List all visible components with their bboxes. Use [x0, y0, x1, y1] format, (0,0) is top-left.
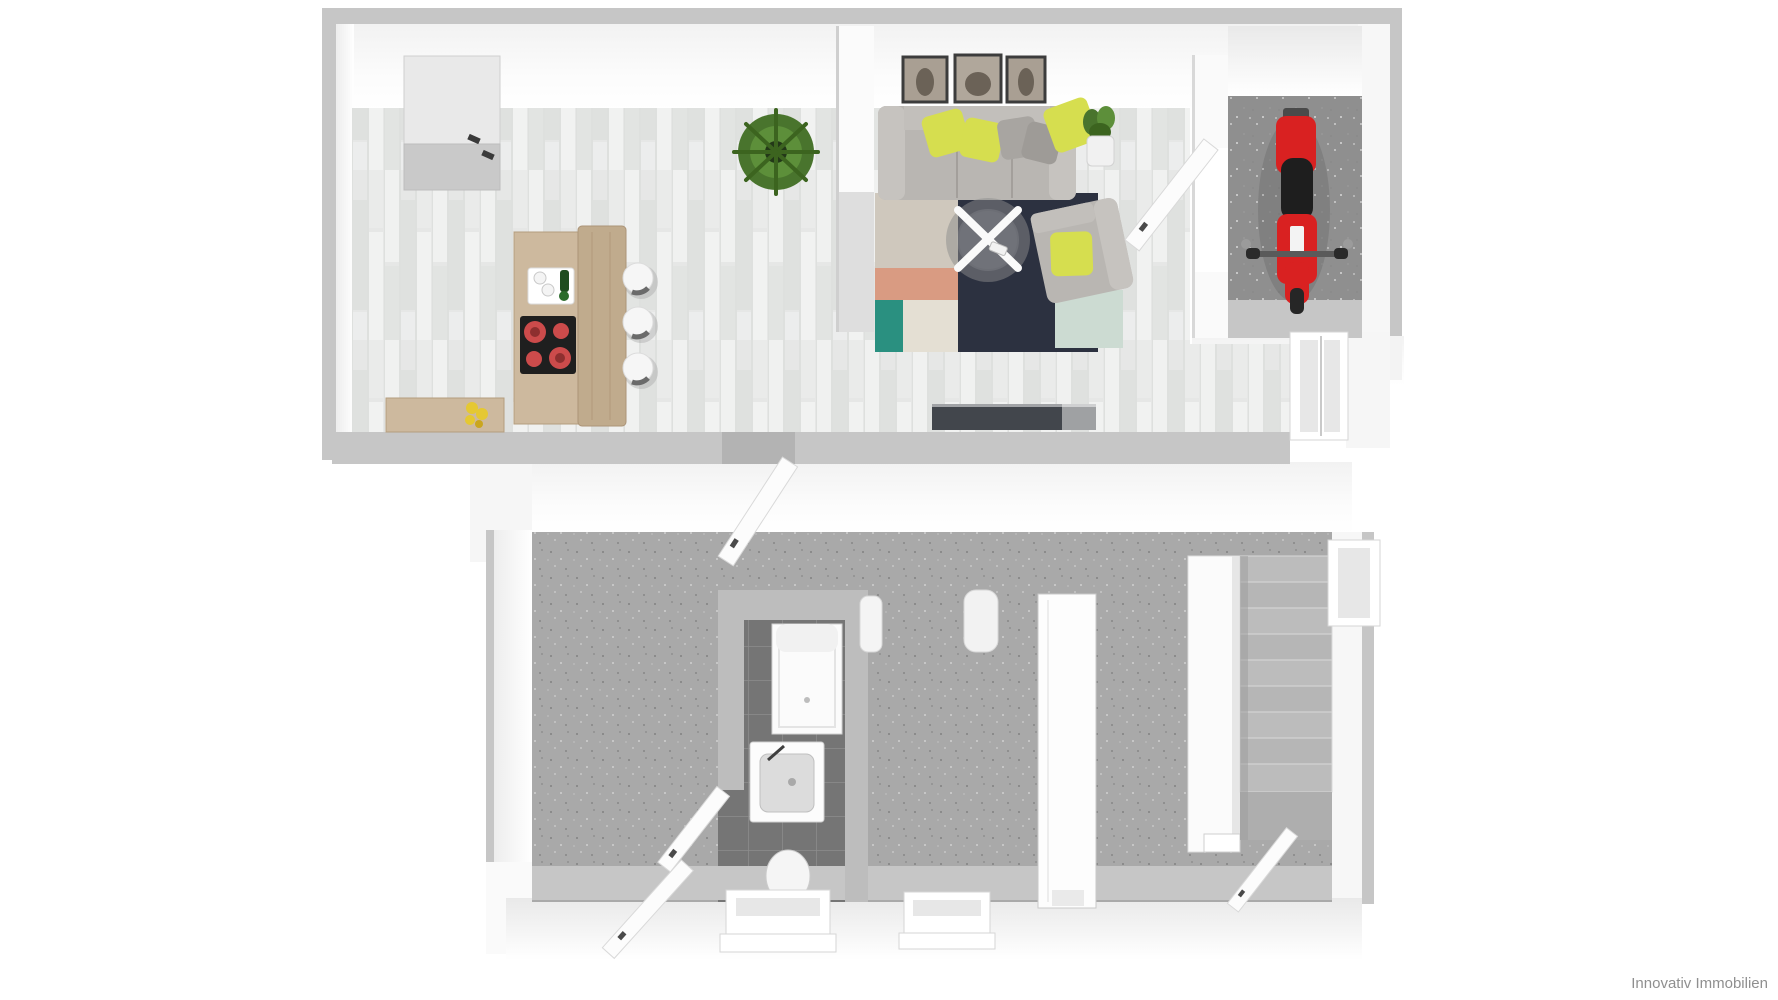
wall-kitchen-living	[836, 26, 874, 332]
floor-plan-svg: Innovativ Immobilien	[0, 0, 1778, 1000]
coffee-table	[946, 198, 1030, 282]
sideboard-with-flowers	[386, 398, 504, 432]
floor-plan-render: Innovativ Immobilien	[0, 0, 1778, 1000]
window-east-lower	[1328, 540, 1380, 626]
sink-vanity	[750, 742, 824, 822]
window-south-left	[720, 890, 836, 952]
wall-pictures	[903, 55, 1045, 102]
bar-stools	[623, 263, 658, 389]
kitchen-island	[514, 226, 626, 426]
sofa	[878, 96, 1100, 200]
window-east-upper	[1290, 332, 1348, 440]
shower-tray	[772, 624, 842, 734]
tv-lowboard	[932, 404, 1096, 430]
wall-stair-partition	[1188, 556, 1240, 852]
wall-hall-stairhall	[1038, 594, 1096, 908]
cooktop	[520, 316, 576, 374]
watermark-text: Innovativ Immobilien	[1631, 975, 1768, 992]
doorframe-post-bathroom	[860, 596, 882, 652]
fern-plant	[734, 110, 818, 194]
window-south-right	[899, 892, 995, 949]
staircase	[1240, 556, 1332, 840]
serving-tray	[528, 268, 574, 304]
armchair	[1030, 196, 1135, 304]
tall-cabinet	[404, 56, 500, 190]
radiator-column	[964, 590, 998, 652]
